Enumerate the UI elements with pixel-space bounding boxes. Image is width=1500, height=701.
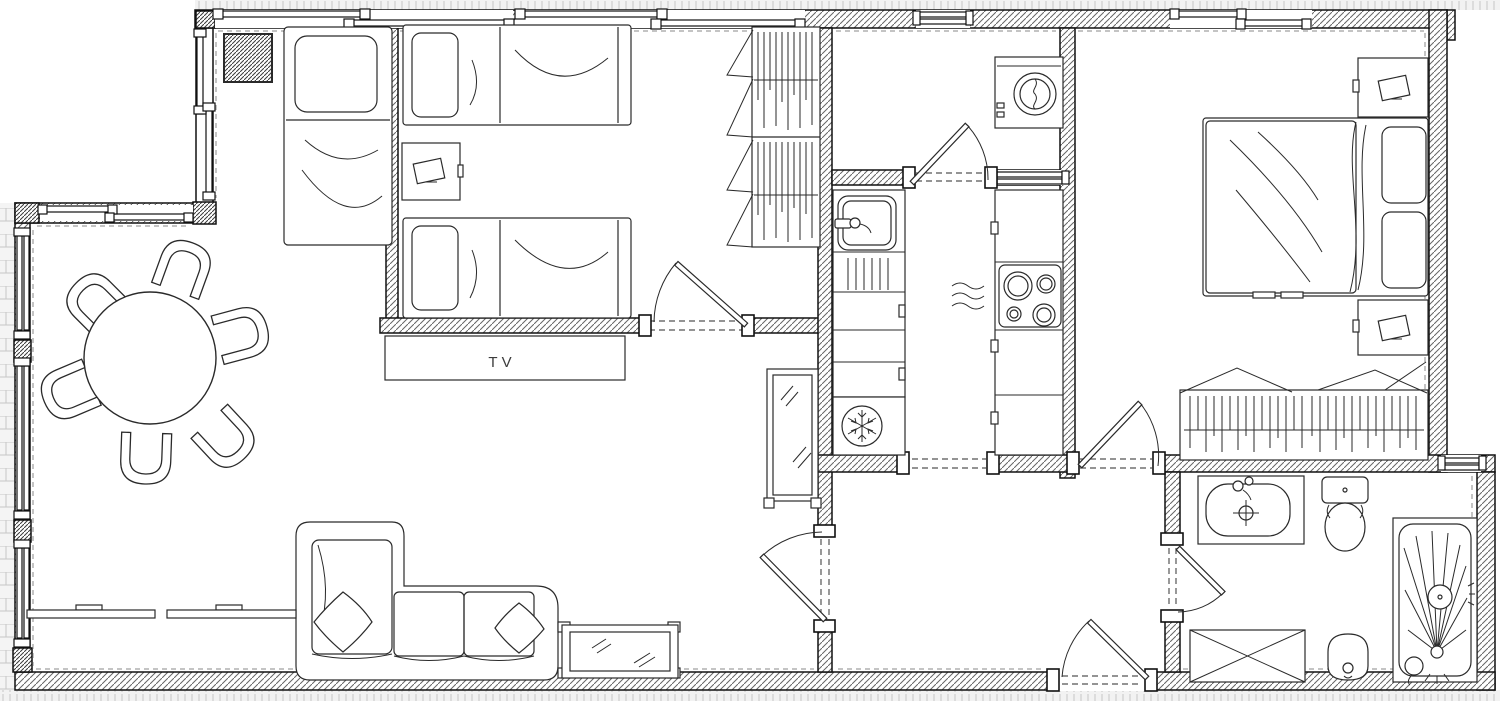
pass-through-window xyxy=(990,170,1069,185)
jog-window xyxy=(38,205,193,222)
dining-chair-5 xyxy=(191,404,262,475)
toilet xyxy=(1322,477,1368,551)
laundry-window xyxy=(913,10,973,28)
twin-bed-top xyxy=(403,25,631,125)
refrigerator xyxy=(833,397,905,455)
alcove-single-bed xyxy=(284,27,392,245)
lower-left-windows xyxy=(14,228,30,647)
bathroom-cabinet xyxy=(1190,630,1305,682)
master-window xyxy=(1170,9,1312,29)
master-double-bed xyxy=(1203,118,1428,298)
wall-right xyxy=(1429,10,1447,472)
twin-bed-bottom xyxy=(403,218,631,318)
terrace-paving-left xyxy=(0,203,15,690)
bathroom-window xyxy=(1438,455,1486,472)
twin-wardrobe xyxy=(727,27,820,247)
tv-label: TV xyxy=(488,354,515,371)
floor-plan: TV xyxy=(0,0,1500,701)
bathroom-door xyxy=(1176,546,1225,612)
column xyxy=(224,34,272,82)
twin-nightstand xyxy=(402,143,463,200)
dining-set xyxy=(35,234,274,485)
heat-squiggle xyxy=(952,283,984,309)
dining-chair-1 xyxy=(152,234,216,299)
round-dining-table xyxy=(84,292,216,424)
terrace-strip-top xyxy=(195,0,1500,10)
washbasin xyxy=(1198,476,1304,544)
corner-sofa xyxy=(296,522,558,680)
master-corner-line xyxy=(1382,362,1426,392)
wall-bathroom-right xyxy=(1477,472,1495,690)
standing-mirror xyxy=(764,369,821,508)
coffee-table xyxy=(558,622,680,678)
terrace-strip-bottom xyxy=(0,690,1500,701)
sideboard xyxy=(27,605,296,618)
door-openings xyxy=(639,123,1225,691)
entrance-door xyxy=(1062,619,1149,679)
floor-plan-drawing: TV xyxy=(0,0,1500,701)
master-wardrobe xyxy=(1180,368,1428,460)
master-nightstand-bottom xyxy=(1353,300,1428,355)
wall-top-right-notch xyxy=(1447,10,1455,40)
dining-chair-6 xyxy=(211,303,273,364)
master-nightstand-top xyxy=(1353,58,1428,117)
dining-chair-4 xyxy=(120,432,172,485)
shower xyxy=(1393,518,1477,685)
wall-twin-bedroom-south xyxy=(380,318,832,333)
bidet xyxy=(1328,634,1368,680)
washing-machine xyxy=(995,57,1063,128)
